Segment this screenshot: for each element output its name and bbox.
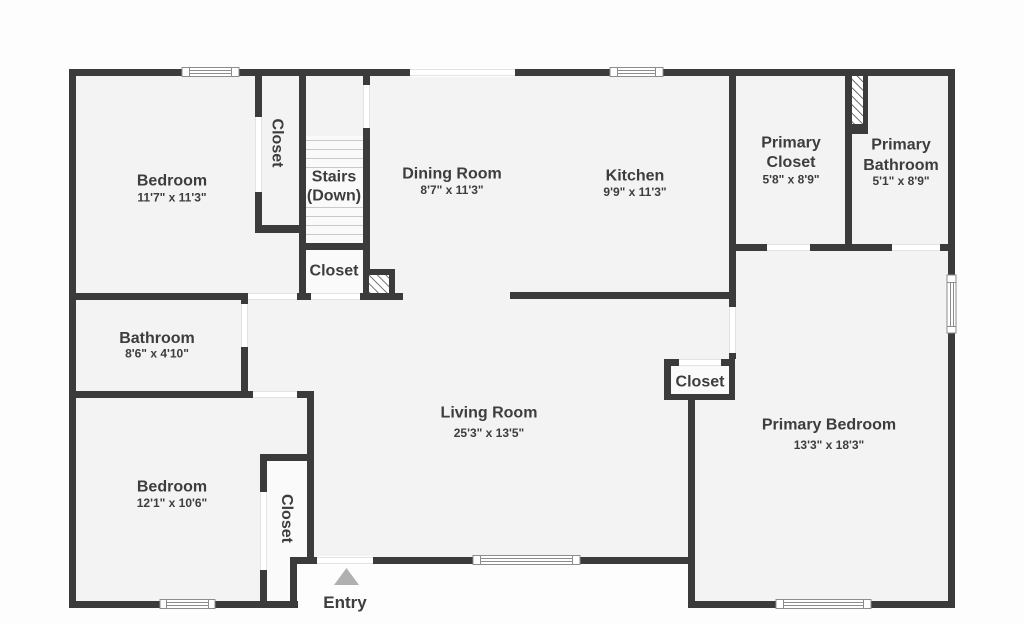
svg-text:Dining Room: Dining Room: [402, 166, 502, 183]
svg-text:Primary: Primary: [871, 137, 931, 154]
svg-text:Primary Bedroom: Primary Bedroom: [762, 417, 896, 434]
svg-text:Bathroom: Bathroom: [119, 330, 195, 347]
svg-text:5'1" x 8'9": 5'1" x 8'9": [872, 174, 929, 188]
svg-text:Closet: Closet: [310, 263, 360, 280]
svg-text:Living Room: Living Room: [441, 405, 538, 422]
svg-text:(Down): (Down): [307, 188, 361, 205]
svg-text:Closet: Closet: [767, 154, 817, 171]
svg-text:Stairs: Stairs: [312, 169, 357, 186]
svg-text:Bathroom: Bathroom: [863, 157, 939, 174]
svg-text:12'1" x 10'6": 12'1" x 10'6": [137, 496, 207, 510]
svg-text:5'8" x 8'9": 5'8" x 8'9": [762, 173, 819, 187]
svg-text:Primary: Primary: [761, 135, 821, 152]
svg-text:25'3" x 13'5": 25'3" x 13'5": [454, 426, 524, 440]
svg-text:11'7" x 11'3": 11'7" x 11'3": [137, 191, 206, 205]
svg-text:8'7" x 11'3": 8'7" x 11'3": [420, 183, 483, 197]
svg-text:Entry: Entry: [323, 593, 367, 612]
svg-text:Closet: Closet: [269, 119, 286, 169]
svg-text:13'3" x 18'3": 13'3" x 18'3": [794, 438, 864, 452]
svg-text:Bedroom: Bedroom: [137, 173, 207, 190]
svg-text:Closet: Closet: [278, 494, 295, 544]
svg-text:Kitchen: Kitchen: [606, 168, 665, 185]
svg-text:Closet: Closet: [676, 374, 726, 391]
svg-text:Bedroom: Bedroom: [137, 479, 207, 496]
svg-text:9'9" x 11'3": 9'9" x 11'3": [603, 185, 666, 199]
svg-text:8'6" x 4'10": 8'6" x 4'10": [125, 347, 189, 361]
